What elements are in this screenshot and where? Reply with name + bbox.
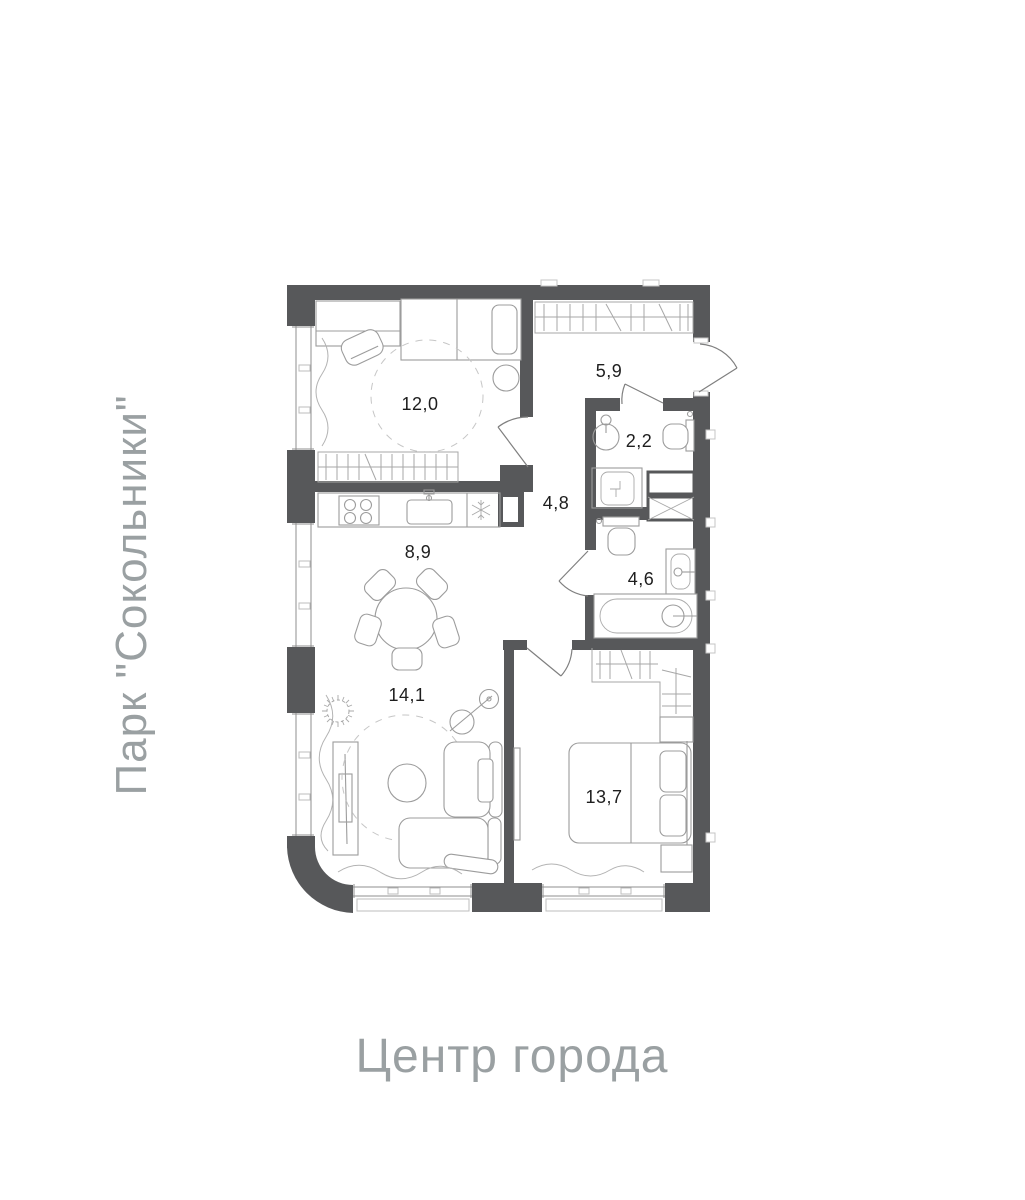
stove-icon: [339, 496, 379, 525]
kitchen-furniture: [318, 490, 500, 670]
window-left-2: [292, 523, 314, 647]
room-area-label: 8,9: [405, 542, 432, 562]
bedroom-top-door: [498, 417, 528, 467]
facade-tab: [706, 591, 715, 600]
toilet-icon: [597, 517, 640, 555]
kitchen-sink-icon: [407, 490, 452, 524]
facade-tab: [643, 280, 659, 286]
fridge-snowflake-icon: [472, 500, 490, 520]
floor-plan-svg: 12,0 5,9 2,2 4,8 4,6 8,9 14,1 13,7 Парк …: [0, 0, 1025, 1200]
room-area-label: 14,1: [388, 685, 425, 705]
washing-machine-icon: [592, 468, 642, 508]
living-room-furniture: [319, 690, 502, 879]
bedroom-master-door: [527, 648, 572, 676]
sink-icon: [593, 415, 619, 450]
floor-plan-page: 12,0 5,9 2,2 4,8 4,6 8,9 14,1 13,7 Парк …: [0, 0, 1025, 1200]
wc-guest-door: [622, 384, 663, 404]
facade-tab: [706, 833, 715, 842]
city-center-annotation: Центр города: [356, 1030, 669, 1083]
coat-rack-icon: [535, 302, 693, 333]
single-bed-icon: [401, 299, 521, 360]
facade-tab: [706, 518, 715, 527]
room-area-label: 5,9: [596, 361, 623, 381]
floor-lamp-icon: [450, 690, 499, 735]
room-area-label: 12,0: [401, 394, 438, 414]
room-area-label: 13,7: [585, 787, 622, 807]
entrance-door: [694, 338, 737, 396]
bathtub-icon: [594, 594, 697, 638]
dining-chair: [353, 612, 383, 647]
curtain-squiggle: [316, 338, 328, 446]
nightstand-icon: [661, 845, 692, 872]
dining-chair: [392, 648, 422, 670]
wardrobe-icon: [592, 648, 693, 742]
plant-icon: [322, 695, 354, 727]
window-left-3: [292, 713, 314, 836]
park-annotation: Парк "Сокольники": [107, 394, 156, 795]
window-left-1: [292, 326, 314, 450]
side-table-icon: [493, 365, 519, 391]
dining-table-icon: [353, 566, 461, 670]
bedroom-master-furniture: [514, 648, 693, 876]
coffee-table-icon: [388, 764, 426, 802]
sofa-icon: [399, 742, 502, 875]
chair-icon: [338, 327, 386, 368]
window-bottom-living: [353, 884, 472, 911]
room-area-label: 4,6: [628, 569, 655, 589]
facade-tab: [541, 280, 557, 286]
tv-console-icon: [333, 742, 358, 855]
wardrobe-shelf: [660, 717, 693, 742]
curtain-squiggle: [532, 864, 644, 876]
tv-panel-icon: [514, 748, 520, 840]
bathroom-door: [559, 551, 588, 596]
toilet-icon: [663, 412, 694, 452]
vent-shaft-x: [648, 497, 694, 520]
hallway-furniture: [535, 302, 693, 333]
sink-icon: [666, 549, 695, 594]
room-area-label: 4,8: [543, 493, 570, 513]
window-bottom-bedroom: [542, 884, 665, 911]
facade-tab: [706, 430, 715, 439]
room-area-label: 2,2: [626, 431, 653, 451]
wardrobe-icon: [318, 452, 458, 482]
dining-chair: [431, 614, 461, 649]
facade-tab: [706, 644, 715, 653]
bedroom-top-furniture: [316, 299, 521, 482]
shaft-box: [648, 472, 694, 494]
